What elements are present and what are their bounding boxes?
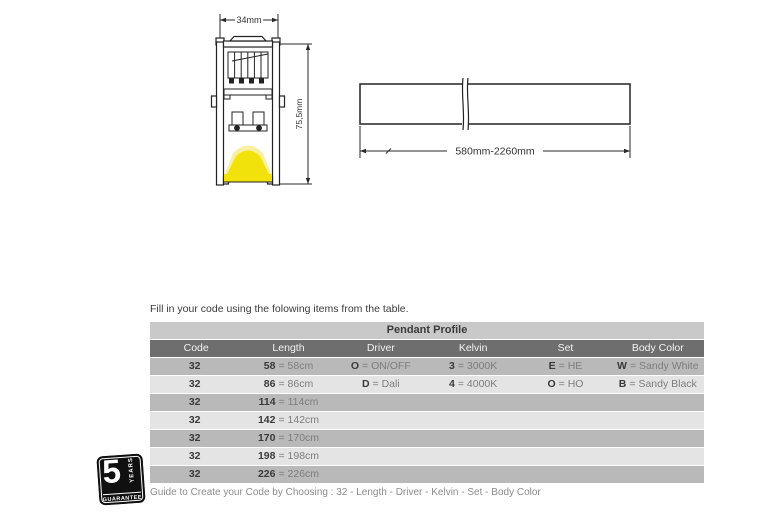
cell-code: 86 <box>264 378 276 390</box>
cell-code: W <box>617 360 627 372</box>
cell-value: = 198cm <box>278 450 319 462</box>
cell-code: 114 <box>259 396 276 408</box>
arrowhead-right <box>272 18 278 22</box>
cell-value: = 226cm <box>278 468 319 480</box>
table-row: 32 58= 58cm O= ON/OFF 3= 3000K E= HE W= … <box>150 358 704 376</box>
table-header-row: Code Length Driver Kelvin Set Body Color <box>150 340 704 358</box>
cell-code: 32 <box>189 450 201 462</box>
cell-value: = HO <box>559 378 584 390</box>
cell-value: = Sandy White <box>630 360 699 372</box>
height-dimension-label: 75,5mm <box>294 99 304 130</box>
table-row: 32 198= 198cm <box>150 448 704 466</box>
cell-code: 32 <box>189 378 201 390</box>
column-header-set: Set <box>519 340 611 357</box>
led-glow <box>224 146 272 183</box>
length-dimension-label: 580mm-2260mm <box>455 146 535 158</box>
page: 34mm <box>0 0 776 525</box>
arrowhead-up <box>306 44 310 50</box>
cell-code: 170 <box>258 432 276 444</box>
cell-code: 3 <box>449 360 455 372</box>
cell-value: = 114cm <box>279 396 319 408</box>
cell-value: = ON/OFF <box>362 360 411 372</box>
badge-number: 5 <box>101 453 122 490</box>
column-header-kelvin: Kelvin <box>427 340 519 357</box>
arrowhead-down <box>306 178 310 184</box>
column-header-body-color: Body Color <box>612 340 704 357</box>
cell-code: O <box>351 360 359 372</box>
cell-code: 32 <box>189 432 201 444</box>
cell-value: = 58cm <box>278 360 313 372</box>
column-header-code: Code <box>150 340 242 357</box>
column-header-driver: Driver <box>335 340 427 357</box>
table-row: 32 226= 226cm <box>150 466 704 484</box>
cell-code: 32 <box>189 414 201 426</box>
side-view-drawing: 580mm-2260mm <box>350 72 642 168</box>
cell-value: = HE <box>559 360 583 372</box>
arrowhead-left <box>220 18 226 22</box>
intro-text: Fill in your code using the folowing ite… <box>150 303 409 315</box>
arrowhead-left <box>360 149 366 153</box>
table-title: Pendant Profile <box>150 322 704 340</box>
cell-value: = Sandy Black <box>629 378 696 390</box>
code-guide-text: Guide to Create your Code by Choosing : … <box>150 487 541 498</box>
column-header-length: Length <box>242 340 334 357</box>
cross-section-drawing: 34mm <box>198 8 338 200</box>
table-row: 32 170= 170cm <box>150 430 704 448</box>
table-row: 32 114= 114cm <box>150 394 704 412</box>
cell-code: 226 <box>258 468 276 480</box>
cell-value: = Dali <box>373 378 400 390</box>
cell-value: = 86cm <box>278 378 313 390</box>
pendant-profile-table: Pendant Profile Code Length Driver Kelvi… <box>150 322 704 484</box>
guarantee-badge: 5 YEARS ✱ GUARANTEE <box>96 453 145 505</box>
table-row: 32 142= 142cm <box>150 412 704 430</box>
cell-code: 198 <box>258 450 276 462</box>
cell-value: = 4000K <box>458 378 497 390</box>
led-bracket <box>229 112 267 131</box>
width-dimension-label: 34mm <box>236 15 261 25</box>
profile-side-body <box>360 84 630 124</box>
cell-value: = 170cm <box>278 432 319 444</box>
cell-code: B <box>619 378 627 390</box>
terminal-block <box>228 52 268 83</box>
table-row: 32 86= 86cm D= Dali 4= 4000K O= HO B= Sa… <box>150 376 704 394</box>
cell-code: D <box>362 378 370 390</box>
cell-code: 32 <box>189 396 201 408</box>
cell-code: 32 <box>189 468 201 480</box>
cell-code: 4 <box>449 378 455 390</box>
cell-code: 142 <box>258 414 276 426</box>
cell-code: 58 <box>264 360 276 372</box>
middle-rail <box>224 89 272 99</box>
cell-code: 32 <box>189 360 201 372</box>
cell-value: = 3000K <box>458 360 497 372</box>
cell-code: O <box>547 378 555 390</box>
break-symbol <box>462 78 469 130</box>
arrowhead-right <box>624 149 630 153</box>
cell-code: E <box>549 360 556 372</box>
cell-value: = 142cm <box>278 414 319 426</box>
